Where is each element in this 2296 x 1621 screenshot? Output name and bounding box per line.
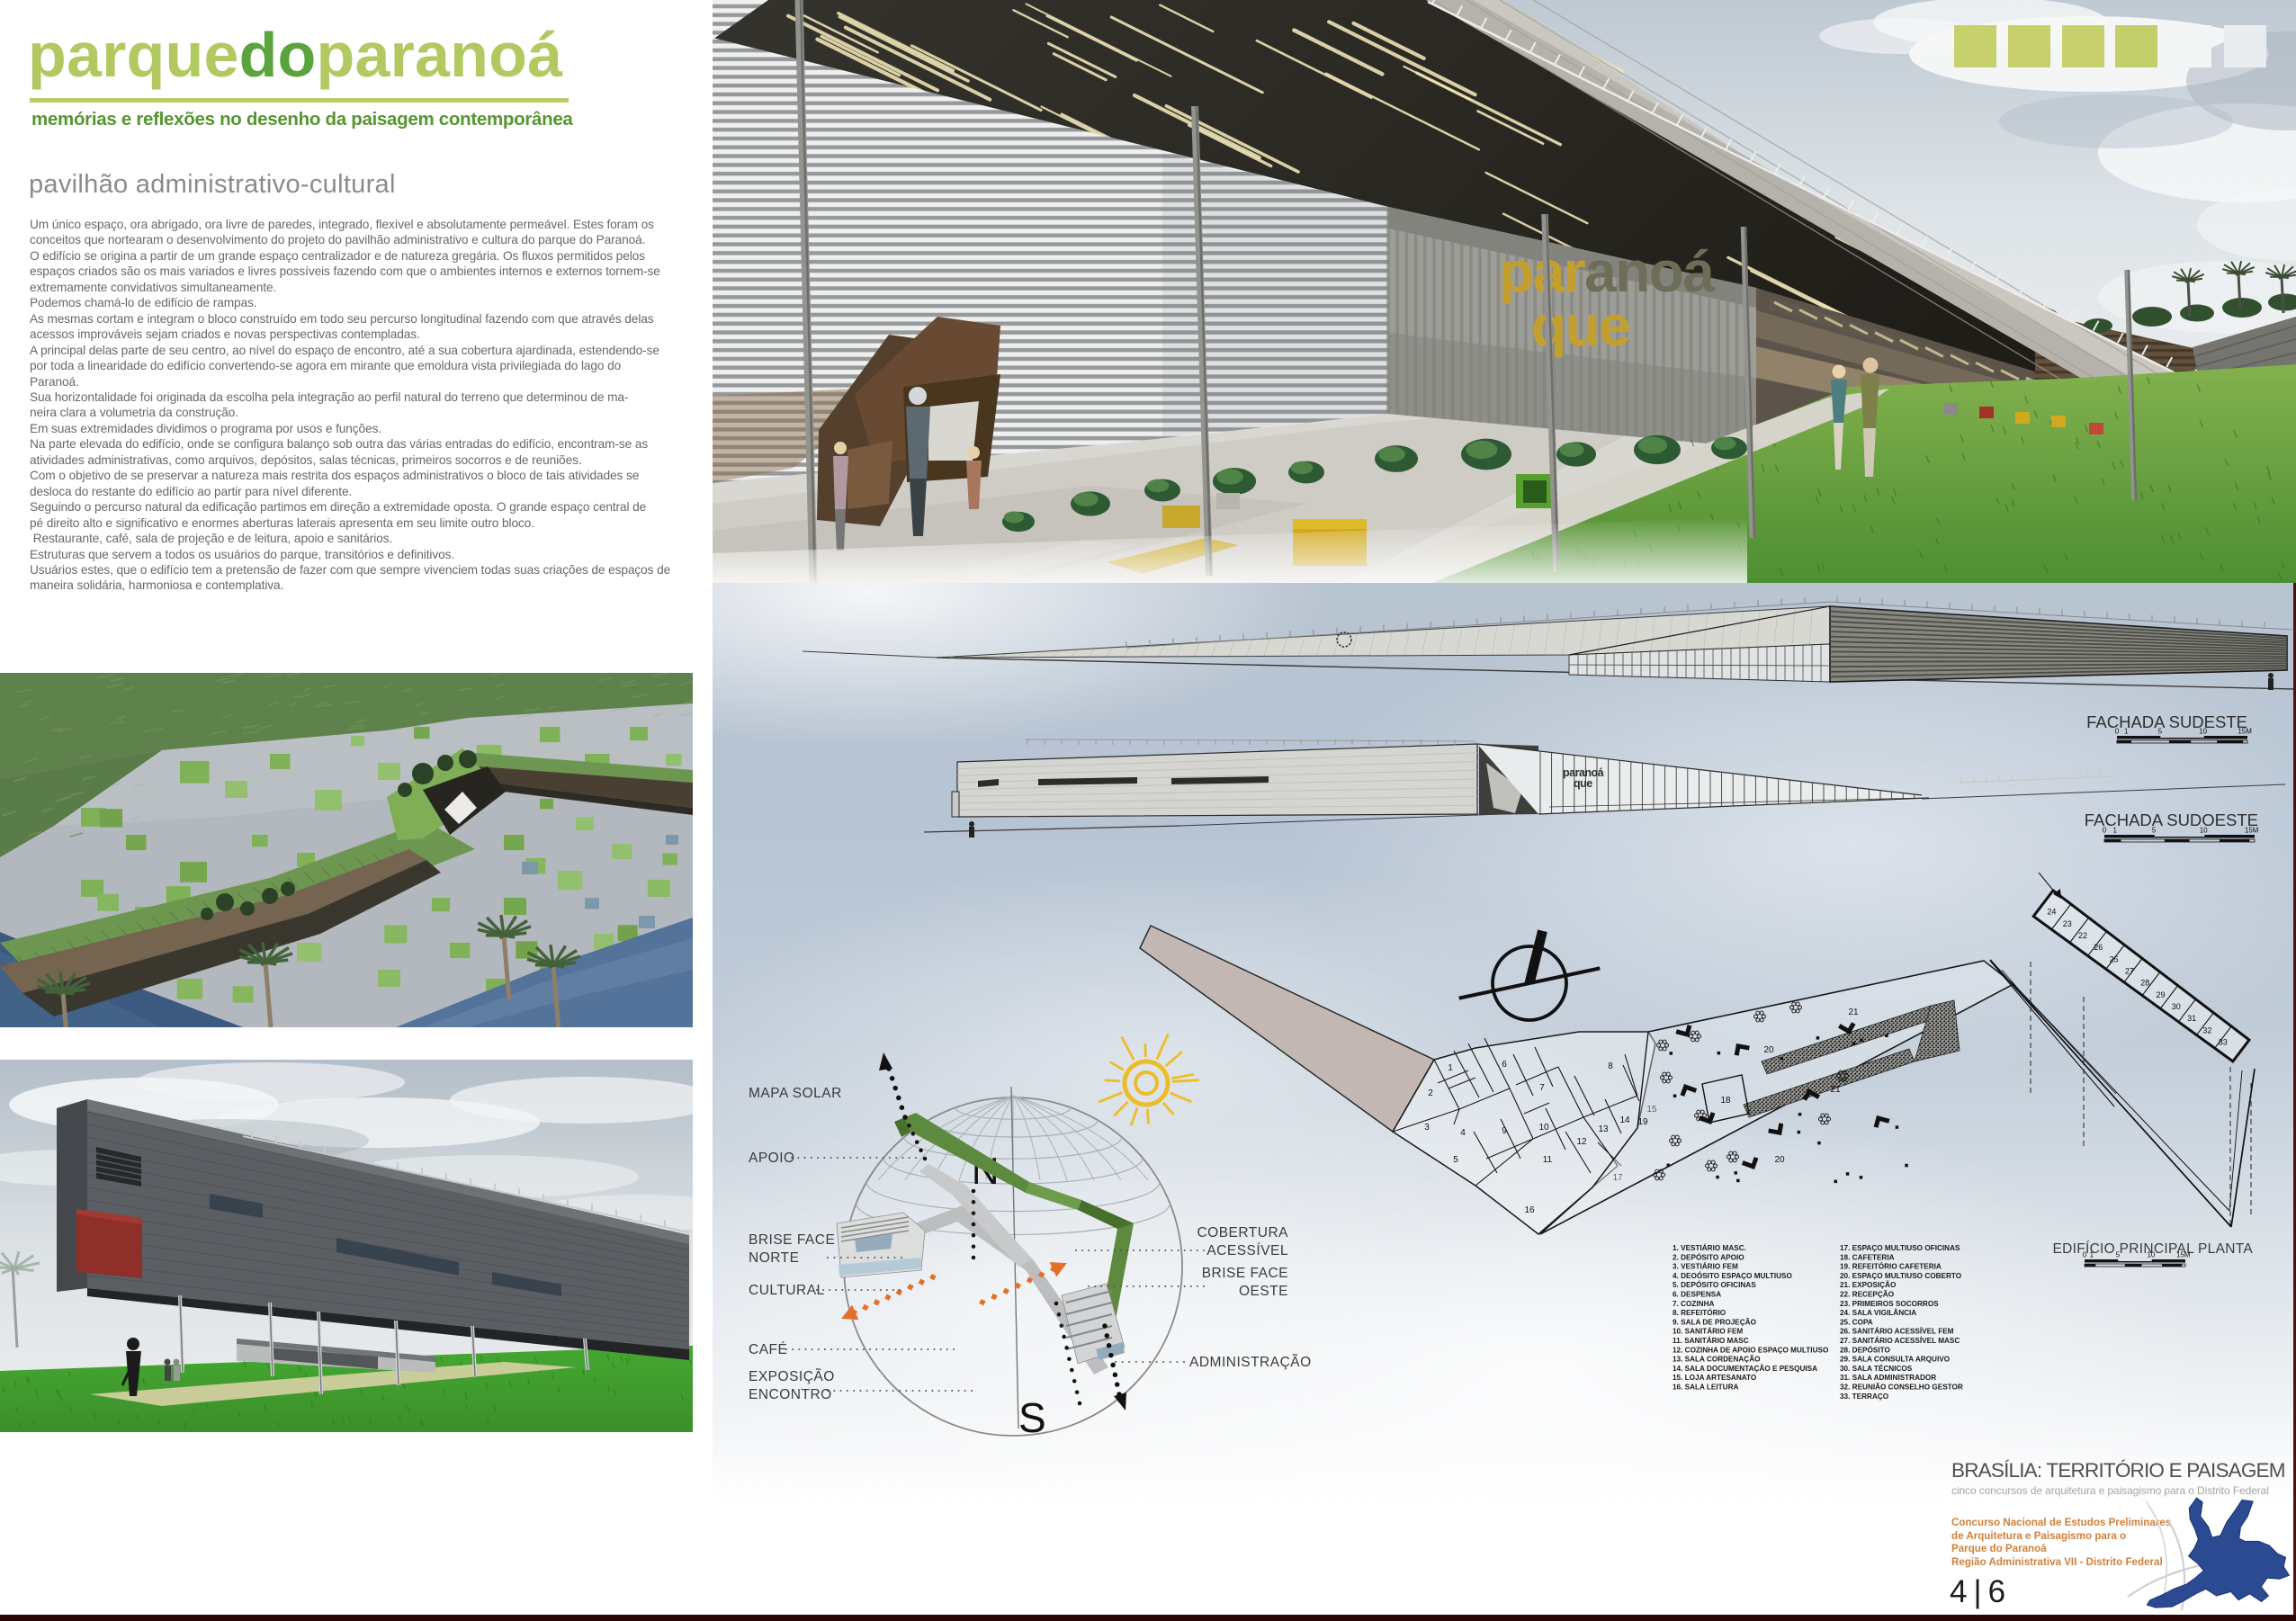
svg-text:0: 0 (2115, 728, 2120, 736)
svg-text:ADMINISTRAÇÃO: ADMINISTRAÇÃO (1189, 1355, 1312, 1370)
svg-text:1: 1 (2112, 827, 2117, 835)
svg-text:9. SALA DE PROJEÇÃO: 9. SALA DE PROJEÇÃO (1673, 1317, 1757, 1326)
svg-text:14. SALA DOCUMENTAÇÃO E PESQUI: 14. SALA DOCUMENTAÇÃO E PESQUISA (1673, 1364, 1817, 1373)
svg-text:0: 0 (2103, 827, 2107, 835)
svg-text:0: 0 (2083, 1251, 2087, 1259)
svg-text:1. VESTIÁRIO MASC.: 1. VESTIÁRIO MASC. (1673, 1243, 1746, 1252)
svg-text:28: 28 (2140, 979, 2149, 988)
svg-text:32: 32 (2202, 1025, 2211, 1034)
svg-text:12. COZINHA DE APOIO ESPAÇO MU: 12. COZINHA DE APOIO ESPAÇO MULTIUSO (1673, 1346, 1829, 1354)
svg-text:25: 25 (2110, 954, 2119, 963)
svg-text:11: 11 (1543, 1155, 1553, 1165)
svg-text:15M: 15M (2176, 1251, 2191, 1259)
svg-text:10: 10 (1538, 1123, 1549, 1133)
svg-text:2. DEPÓSITO APOIO: 2. DEPÓSITO APOIO (1673, 1251, 1744, 1261)
svg-text:10: 10 (2200, 827, 2208, 835)
svg-text:3: 3 (1424, 1123, 1430, 1133)
svg-text:17. ESPAÇO MULTIUSO OFICINAS: 17. ESPAÇO MULTIUSO OFICINAS (1840, 1244, 1960, 1252)
svg-text:1: 1 (2124, 728, 2129, 736)
svg-text:COBERTURA: COBERTURA (1197, 1225, 1288, 1240)
svg-text:30: 30 (2172, 1002, 2181, 1011)
svg-text:MAPA SOLAR: MAPA SOLAR (749, 1086, 842, 1101)
svg-text:13: 13 (1598, 1124, 1609, 1134)
svg-text:FACHADA SUDOESTE: FACHADA SUDOESTE (2085, 810, 2258, 829)
svg-text:FACHADA SUDESTE: FACHADA SUDESTE (2086, 712, 2247, 731)
svg-text:BRISE FACE: BRISE FACE (749, 1232, 835, 1248)
svg-text:CAFÉ: CAFÉ (749, 1342, 787, 1357)
svg-text:23. PRIMEIROS SOCORROS: 23. PRIMEIROS SOCORROS (1840, 1300, 1939, 1308)
svg-text:5. DEPÓSITO OFICINAS: 5. DEPÓSITO OFICINAS (1673, 1279, 1756, 1289)
svg-text:S: S (1018, 1394, 1046, 1441)
svg-text:ENCONTRO: ENCONTRO (749, 1387, 832, 1402)
svg-text:1: 1 (1448, 1063, 1453, 1073)
svg-text:CULTURAL: CULTURAL (749, 1283, 825, 1298)
svg-text:7: 7 (1539, 1083, 1545, 1093)
svg-text:26. SANITÁRIO ACESSÍVEL FEM: 26. SANITÁRIO ACESSÍVEL FEM (1840, 1327, 1954, 1336)
svg-text:25. COPA: 25. COPA (1840, 1318, 1873, 1326)
svg-text:24: 24 (2047, 908, 2056, 917)
svg-text:1: 1 (2090, 1251, 2094, 1259)
svg-text:9: 9 (1502, 1126, 1507, 1136)
svg-text:que: que (1574, 777, 1592, 790)
svg-text:27. SANITÁRIO ACESSÍVEL MASC: 27. SANITÁRIO ACESSÍVEL MASC (1840, 1336, 1960, 1345)
svg-text:20: 20 (1763, 1045, 1774, 1055)
svg-text:5: 5 (2158, 728, 2163, 736)
svg-text:33: 33 (2219, 1038, 2228, 1047)
svg-text:21: 21 (1848, 1008, 1859, 1017)
svg-text:21: 21 (1830, 1085, 1841, 1095)
svg-text:22. RECEPÇÃO: 22. RECEPÇÃO (1840, 1290, 1895, 1299)
svg-text:NORTE: NORTE (749, 1250, 799, 1266)
svg-text:BRISE FACE: BRISE FACE (1202, 1266, 1288, 1281)
svg-text:10: 10 (2199, 728, 2207, 736)
svg-text:33. TERRAÇO: 33. TERRAÇO (1840, 1393, 1889, 1401)
svg-text:24. SALA VIGILÂNCIA: 24. SALA VIGILÂNCIA (1840, 1307, 1916, 1317)
svg-text:16: 16 (1524, 1205, 1535, 1215)
svg-text:ACESSÍVEL: ACESSÍVEL (1206, 1243, 1288, 1258)
svg-text:19. REFEITÓRIO CAFETERIA: 19. REFEITÓRIO CAFETERIA (1840, 1261, 1942, 1271)
svg-text:4. DEOÓSITO ESPAÇO MULTIUSO: 4. DEOÓSITO ESPAÇO MULTIUSO (1673, 1270, 1792, 1280)
svg-text:12: 12 (1576, 1137, 1587, 1147)
svg-text:20: 20 (1774, 1155, 1785, 1165)
svg-text:20. ESPAÇO MULTIUSO COBERTO: 20. ESPAÇO MULTIUSO COBERTO (1840, 1272, 1962, 1280)
svg-text:15. LOJA ARTESANATO: 15. LOJA ARTESANATO (1673, 1374, 1757, 1382)
svg-text:22: 22 (2078, 931, 2087, 940)
svg-text:10: 10 (2147, 1251, 2155, 1259)
svg-text:5: 5 (2116, 1251, 2121, 1259)
svg-text:29: 29 (2156, 990, 2165, 999)
svg-text:23: 23 (2063, 919, 2072, 928)
svg-text:26: 26 (2094, 943, 2103, 952)
svg-text:8. REFEITÓRIO: 8. REFEITÓRIO (1673, 1307, 1726, 1317)
svg-text:31: 31 (2187, 1014, 2196, 1023)
svg-text:8: 8 (1608, 1061, 1613, 1071)
svg-text:27: 27 (2125, 967, 2134, 976)
svg-text:15M: 15M (2238, 728, 2252, 736)
svg-text:6: 6 (1502, 1060, 1507, 1070)
svg-text:APOIO: APOIO (749, 1151, 795, 1166)
svg-text:15M: 15M (2245, 827, 2259, 835)
svg-text:14: 14 (1619, 1115, 1630, 1125)
svg-text:10. SANITÁRIO FEM: 10. SANITÁRIO FEM (1673, 1327, 1743, 1336)
svg-text:2: 2 (1428, 1088, 1433, 1098)
svg-text:5: 5 (1453, 1155, 1458, 1165)
svg-text:11. SANITÁRIO MASC: 11. SANITÁRIO MASC (1673, 1336, 1749, 1345)
svg-text:5: 5 (2152, 827, 2157, 835)
svg-text:18: 18 (1720, 1096, 1731, 1106)
svg-text:16. SALA LEITURA: 16. SALA LEITURA (1673, 1384, 1738, 1392)
svg-text:18. CAFETERIA: 18. CAFETERIA (1840, 1253, 1895, 1261)
svg-text:7. COZINHA: 7. COZINHA (1673, 1300, 1714, 1308)
svg-text:4: 4 (1460, 1128, 1466, 1138)
svg-text:6. DESPENSA: 6. DESPENSA (1673, 1291, 1721, 1299)
svg-text:13. SALA CORDENAÇÃO: 13. SALA CORDENAÇÃO (1673, 1355, 1761, 1364)
svg-text:OESTE: OESTE (1239, 1284, 1288, 1299)
svg-text:30. SALA TÉCNICOS: 30. SALA TÉCNICOS (1840, 1364, 1913, 1373)
svg-text:19: 19 (1637, 1117, 1648, 1127)
svg-text:28. DEPÓSITO: 28. DEPÓSITO (1840, 1344, 1890, 1354)
svg-text:EXPOSIÇÃO: EXPOSIÇÃO (749, 1369, 835, 1384)
svg-text:3. VESTIÁRIO FEM: 3. VESTIÁRIO FEM (1673, 1262, 1738, 1271)
svg-text:29. SALA CONSULTA ARQUIVO: 29. SALA CONSULTA ARQUIVO (1840, 1356, 1951, 1364)
svg-text:32. REUNIÃO CONSELHO GESTOR: 32. REUNIÃO CONSELHO GESTOR (1840, 1383, 1963, 1392)
svg-text:21. EXPOSIÇÃO: 21. EXPOSIÇÃO (1840, 1280, 1897, 1289)
svg-text:31. SALA ADMINISTRADOR: 31. SALA ADMINISTRADOR (1840, 1374, 1936, 1382)
